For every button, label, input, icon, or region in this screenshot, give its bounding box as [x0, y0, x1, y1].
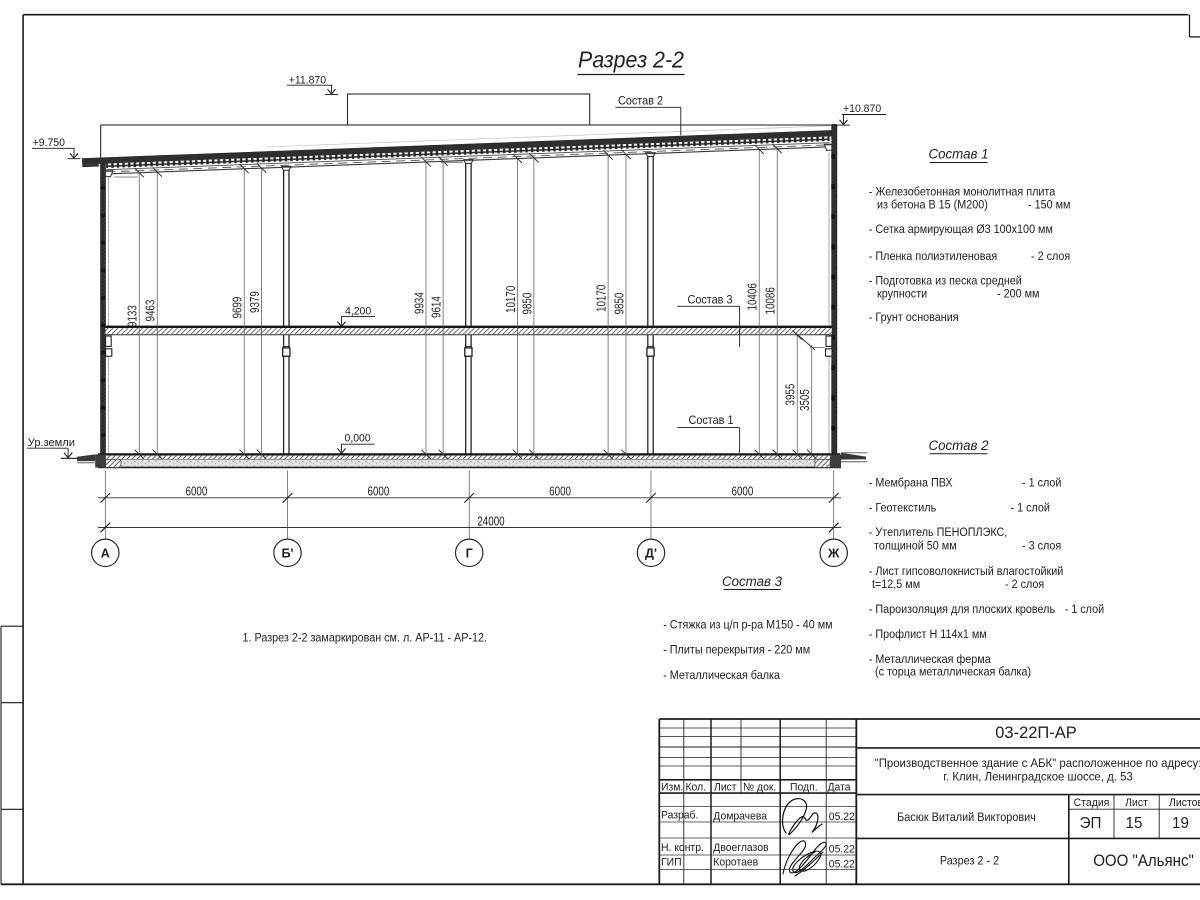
svg-text:9133: 9133	[127, 305, 140, 327]
svg-text:Кол.: Кол.	[686, 781, 707, 793]
svg-text:9850: 9850	[521, 293, 534, 315]
svg-text:г. Клин, Ленинградское шоссе,: г. Клин, Ленинградское шоссе, д. 53	[943, 769, 1133, 784]
svg-text:+11.870: +11.870	[289, 74, 326, 86]
svg-text:крупности: крупности	[877, 288, 927, 301]
svg-text:- Профлист Н 114х1 мм: - Профлист Н 114х1 мм	[869, 629, 987, 642]
svg-text:- Мембрана ПВХ: - Мембрана ПВХ	[869, 477, 953, 490]
svg-text:ЭП: ЭП	[1080, 815, 1102, 832]
svg-text:Состав 3: Состав 3	[722, 574, 782, 589]
svg-text:- 2 слоя: - 2 слоя	[1031, 251, 1070, 264]
svg-text:Д': Д'	[645, 545, 657, 560]
svg-text:ГИП: ГИП	[661, 856, 682, 868]
svg-text:9379: 9379	[249, 291, 262, 313]
svg-text:"Производственное здание с АБК: "Производственное здание с АБК" располож…	[875, 755, 1200, 770]
svg-text:Домрачева: Домрачева	[713, 810, 768, 822]
svg-text:- Пароизоляция для плоских кро: - Пароизоляция для плоских кровель	[869, 604, 1055, 617]
svg-text:- Пленка полиэтиленовая: - Пленка полиэтиленовая	[869, 251, 997, 264]
svg-text:05.22: 05.22	[829, 811, 855, 823]
svg-text:Лист: Лист	[714, 781, 737, 793]
svg-text:6000: 6000	[549, 485, 571, 498]
svg-text:- 150 мм: - 150 мм	[1028, 199, 1071, 212]
svg-text:15: 15	[1126, 815, 1143, 832]
svg-text:t=12,5 мм: t=12,5 мм	[872, 578, 920, 591]
svg-text:- 200 мм: - 200 мм	[997, 288, 1040, 301]
svg-text:Состав 2: Состав 2	[618, 95, 663, 107]
svg-text:9699: 9699	[232, 297, 245, 319]
svg-text:- Подготовка из песка средней: - Подготовка из песка средней	[869, 275, 1022, 288]
svg-text:- Сетка армирующая Ø3 100х100: - Сетка армирующая Ø3 100х100 мм	[869, 223, 1053, 236]
svg-text:- Плиты перекрытия - 220 мм: - Плиты перекрытия - 220 мм	[663, 644, 810, 657]
svg-text:- Грунт основания: - Грунт основания	[869, 312, 959, 325]
svg-text:- Металлическая ферма: - Металлическая ферма	[869, 653, 992, 666]
svg-text:Состав 3: Состав 3	[688, 294, 733, 306]
svg-text:10406: 10406	[747, 283, 760, 310]
svg-text:Дата: Дата	[828, 781, 852, 793]
svg-text:03-22П-АР: 03-22П-АР	[995, 724, 1077, 742]
svg-text:10170: 10170	[595, 285, 608, 312]
svg-text:Стадия: Стадия	[1074, 797, 1110, 809]
svg-text:Б': Б'	[282, 545, 294, 560]
svg-text:24000: 24000	[477, 515, 504, 528]
svg-text:6000: 6000	[367, 485, 389, 498]
svg-text:- 1 слой: - 1 слой	[1022, 477, 1061, 490]
svg-text:- 1 слой: - 1 слой	[1011, 502, 1050, 515]
svg-text:9850: 9850	[613, 293, 626, 315]
svg-text:10086: 10086	[765, 287, 778, 314]
svg-text:Ур.земли: Ур.земли	[28, 437, 75, 449]
svg-text:Состав 2: Состав 2	[929, 437, 989, 452]
svg-text:Состав 1: Состав 1	[929, 146, 989, 161]
svg-text:Листов: Листов	[1169, 797, 1200, 809]
svg-text:из бетона В 15 (М200): из бетона В 15 (М200)	[877, 199, 988, 212]
svg-text:А: А	[101, 545, 110, 560]
svg-text:Ж: Ж	[827, 545, 840, 560]
svg-text:+10.870: +10.870	[843, 103, 881, 115]
svg-text:1. Разрез 2-2 замаркирован см.: 1. Разрез 2-2 замаркирован см. л. АР-11 …	[243, 632, 488, 645]
svg-text:6000: 6000	[185, 485, 207, 498]
svg-text:9463: 9463	[145, 300, 158, 322]
svg-text:6000: 6000	[731, 485, 753, 498]
svg-text:Н. контр.: Н. контр.	[661, 842, 704, 854]
svg-text:05.22: 05.22	[829, 858, 855, 870]
svg-text:Разрез 2 - 2: Разрез 2 - 2	[940, 855, 999, 867]
svg-text:Коротаев: Коротаев	[713, 856, 758, 868]
svg-text:- Лист гипсоволокнистый влагос: - Лист гипсоволокнистый влагостойкий	[869, 566, 1064, 579]
svg-text:толщиной 50 мм: толщиной 50 мм	[874, 540, 957, 553]
svg-text:- 3 слоя: - 3 слоя	[1022, 540, 1061, 553]
svg-text:3505: 3505	[799, 389, 812, 411]
svg-text:Состав 1: Состав 1	[689, 415, 734, 427]
svg-text:05.22: 05.22	[829, 843, 855, 855]
svg-text:9934: 9934	[413, 292, 426, 314]
svg-text:(с торца металлическая балка): (с торца металлическая балка)	[875, 666, 1031, 679]
svg-text:4,200: 4,200	[345, 305, 371, 317]
svg-text:19: 19	[1172, 815, 1189, 832]
svg-text:3955: 3955	[785, 384, 798, 406]
svg-text:- Утеплитель ПЕНОПЛЭКС,: - Утеплитель ПЕНОПЛЭКС,	[869, 527, 1008, 540]
svg-text:9614: 9614	[430, 296, 443, 318]
svg-text:- Геотекстиль: - Геотекстиль	[869, 502, 936, 515]
svg-text:- 2 слоя: - 2 слоя	[1005, 578, 1044, 591]
svg-text:0,000: 0,000	[345, 432, 371, 444]
svg-text:Разрез 2-2: Разрез 2-2	[578, 47, 685, 73]
svg-text:- Металлическая балка: - Металлическая балка	[663, 669, 780, 682]
svg-text:- Стяжка из ц/п р-ра М150 - 40: - Стяжка из ц/п р-ра М150 - 40 мм	[663, 619, 833, 632]
svg-text:- 1 слой: - 1 слой	[1065, 604, 1104, 617]
svg-text:- Железобетонная монолитная п: - Железобетонная монолитная плита	[869, 186, 1056, 199]
svg-text:10170: 10170	[505, 286, 518, 313]
svg-text:Разраб.: Разраб.	[661, 809, 698, 821]
svg-text:Басюк Виталий Викторович: Басюк Виталий Викторович	[897, 812, 1036, 824]
svg-text:№ док.: № док.	[743, 781, 776, 793]
svg-text:ООО "Альянс": ООО "Альянс"	[1093, 853, 1194, 871]
svg-text:Подп.: Подп.	[790, 781, 818, 793]
svg-text:+9.750: +9.750	[33, 137, 65, 149]
svg-text:Г: Г	[466, 545, 474, 560]
svg-text:Лист: Лист	[1125, 797, 1148, 809]
svg-text:Двоеглазов: Двоеглазов	[713, 842, 768, 854]
svg-text:Изм.: Изм.	[661, 781, 683, 793]
